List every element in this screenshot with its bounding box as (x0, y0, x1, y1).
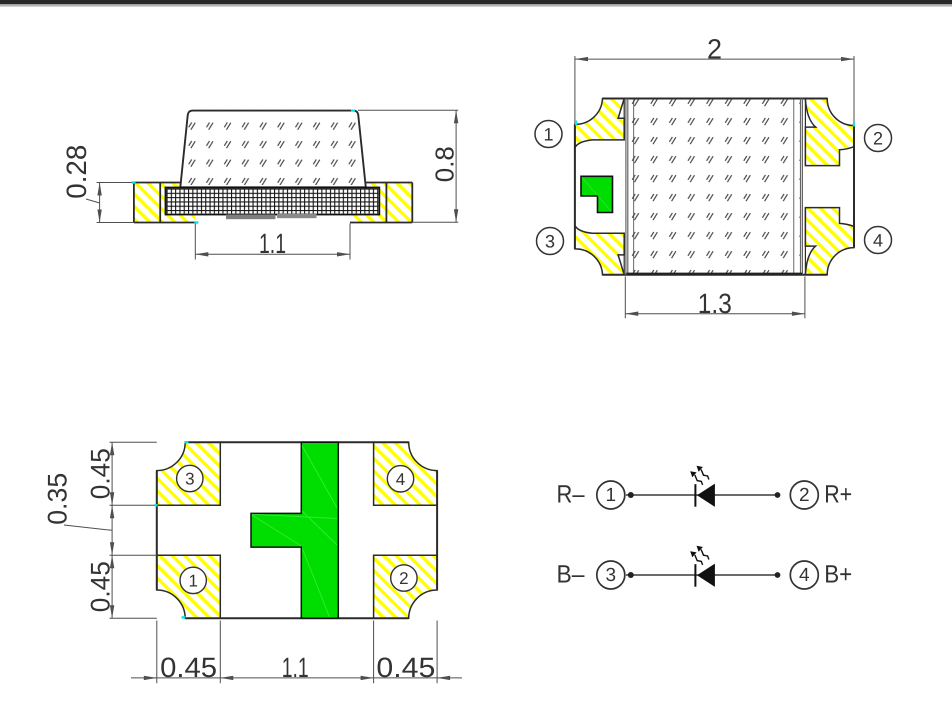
svg-text:2: 2 (707, 34, 722, 65)
svg-text:3: 3 (606, 565, 617, 586)
svg-text:1.1: 1.1 (259, 228, 286, 259)
svg-text:0.45: 0.45 (376, 652, 435, 683)
svg-text:1: 1 (606, 485, 617, 506)
svg-text:2: 2 (873, 128, 883, 148)
svg-text:1: 1 (543, 124, 553, 144)
svg-text:3: 3 (185, 470, 194, 489)
svg-text:2: 2 (399, 569, 408, 588)
svg-text:R+: R+ (824, 480, 852, 508)
svg-text:B–: B– (557, 560, 585, 588)
svg-text:4: 4 (396, 470, 405, 489)
svg-text:4: 4 (799, 565, 810, 586)
svg-text:0.45: 0.45 (86, 448, 116, 499)
svg-text:0.45: 0.45 (160, 652, 217, 683)
svg-text:0.35: 0.35 (43, 473, 73, 525)
svg-text:1.3: 1.3 (698, 288, 732, 319)
svg-text:3: 3 (545, 231, 555, 251)
svg-text:0.28: 0.28 (61, 145, 92, 199)
svg-text:B+: B+ (824, 560, 852, 588)
svg-text:2: 2 (799, 485, 810, 506)
svg-text:1: 1 (188, 571, 197, 590)
svg-text:4: 4 (873, 230, 883, 250)
svg-text:1.1: 1.1 (282, 652, 309, 683)
svg-text:0.45: 0.45 (86, 561, 116, 612)
svg-text:R–: R– (557, 480, 585, 508)
svg-text:0.8: 0.8 (430, 146, 460, 182)
